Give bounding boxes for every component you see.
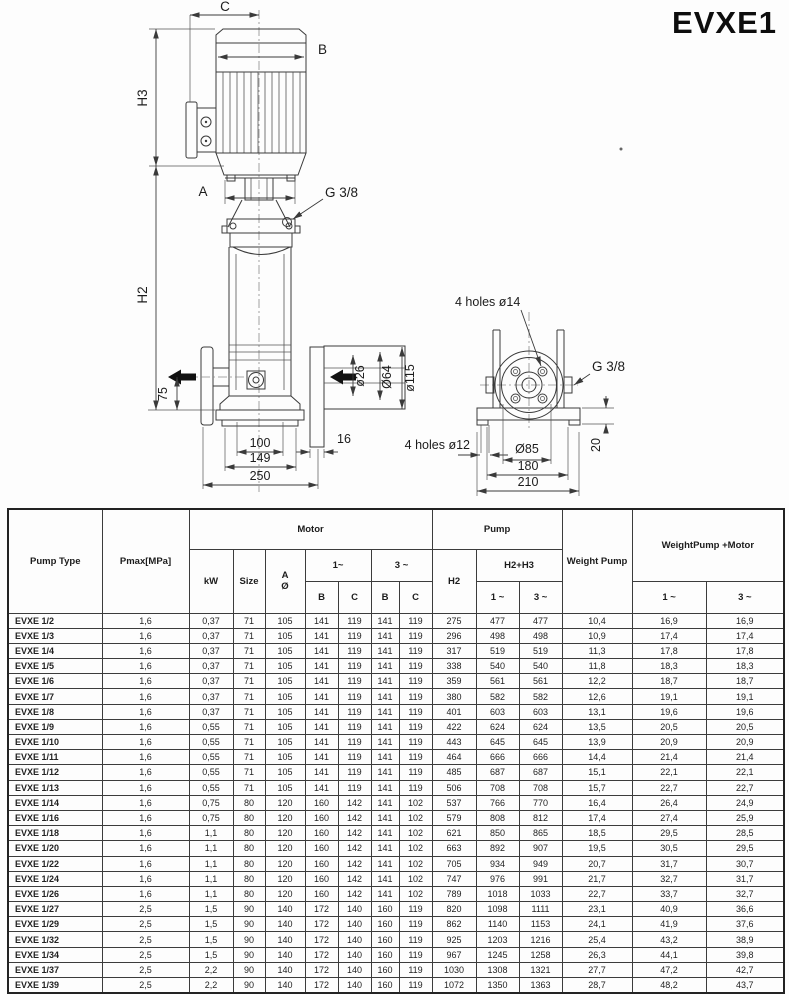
value-cell: 119 bbox=[338, 613, 371, 628]
value-cell: 1,6 bbox=[102, 659, 189, 674]
value-cell: 498 bbox=[519, 628, 562, 643]
value-cell: 102 bbox=[399, 826, 432, 841]
flow-arrow-icon bbox=[168, 370, 196, 385]
value-cell: 142 bbox=[338, 886, 371, 901]
value-cell: 105 bbox=[265, 643, 305, 658]
value-cell: 26,4 bbox=[632, 795, 706, 810]
pump-type-cell: EVXE 1/6 bbox=[8, 674, 102, 689]
value-cell: 105 bbox=[265, 750, 305, 765]
leader-g38-front bbox=[293, 199, 323, 219]
value-cell: 119 bbox=[399, 674, 432, 689]
value-cell: 1,6 bbox=[102, 674, 189, 689]
value-cell: 29,5 bbox=[632, 826, 706, 841]
value-cell: 71 bbox=[233, 659, 265, 674]
value-cell: 11,8 bbox=[562, 659, 632, 674]
table-row: EVXE 1/121,60,55711051411191411194856876… bbox=[8, 765, 784, 780]
value-cell: 687 bbox=[476, 765, 519, 780]
value-cell: 141 bbox=[371, 871, 399, 886]
value-cell: 119 bbox=[338, 735, 371, 750]
value-cell: 80 bbox=[233, 795, 265, 810]
group-weight-pump-motor: WeightPump +Motor bbox=[632, 509, 784, 581]
value-cell: 80 bbox=[233, 856, 265, 871]
col-h2: H2 bbox=[432, 549, 476, 613]
value-cell: 141 bbox=[305, 719, 338, 734]
base-foot bbox=[220, 396, 300, 410]
drain-boss bbox=[247, 371, 265, 389]
value-cell: 506 bbox=[432, 780, 476, 795]
value-cell: 582 bbox=[476, 689, 519, 704]
value-cell: 39,8 bbox=[706, 947, 784, 962]
pump-type-cell: EVXE 1/11 bbox=[8, 750, 102, 765]
value-cell: 160 bbox=[371, 978, 399, 993]
value-cell: 1030 bbox=[432, 962, 476, 977]
value-cell: 105 bbox=[265, 735, 305, 750]
value-cell: 537 bbox=[432, 795, 476, 810]
value-cell: 119 bbox=[338, 643, 371, 658]
value-cell: 19,6 bbox=[632, 704, 706, 719]
value-cell: 1203 bbox=[476, 932, 519, 947]
value-cell: 422 bbox=[432, 719, 476, 734]
value-cell: 789 bbox=[432, 886, 476, 901]
value-cell: 140 bbox=[338, 978, 371, 993]
value-cell: 1,6 bbox=[102, 826, 189, 841]
dim-label-100: 100 bbox=[250, 436, 271, 450]
pump-type-cell: EVXE 1/34 bbox=[8, 947, 102, 962]
value-cell: 80 bbox=[233, 871, 265, 886]
value-cell: 142 bbox=[338, 826, 371, 841]
value-cell: 141 bbox=[371, 735, 399, 750]
value-cell: 31,7 bbox=[632, 856, 706, 871]
value-cell: 1,5 bbox=[189, 932, 233, 947]
value-cell: 1,6 bbox=[102, 871, 189, 886]
value-cell: 141 bbox=[305, 735, 338, 750]
value-cell: 925 bbox=[432, 932, 476, 947]
value-cell: 1,6 bbox=[102, 886, 189, 901]
pump-type-cell: EVXE 1/4 bbox=[8, 643, 102, 658]
value-cell: 105 bbox=[265, 613, 305, 628]
side-base-foot bbox=[569, 420, 580, 425]
value-cell: 666 bbox=[519, 750, 562, 765]
value-cell: 1,6 bbox=[102, 795, 189, 810]
value-cell: 27,7 bbox=[562, 962, 632, 977]
value-cell: 33,7 bbox=[632, 886, 706, 901]
value-cell: 519 bbox=[519, 643, 562, 658]
col-h2h3-1ph: 1 ~ bbox=[476, 581, 519, 613]
col-weight-3ph: 3 ~ bbox=[706, 581, 784, 613]
value-cell: 142 bbox=[338, 795, 371, 810]
table-row: EVXE 1/91,60,557110514111914111942262462… bbox=[8, 719, 784, 734]
value-cell: 119 bbox=[338, 689, 371, 704]
value-cell: 141 bbox=[371, 886, 399, 901]
dim-label-h3: H3 bbox=[135, 89, 150, 106]
value-cell: 119 bbox=[399, 643, 432, 658]
pump-type-cell: EVXE 1/29 bbox=[8, 917, 102, 932]
value-cell: 141 bbox=[305, 780, 338, 795]
dimensions-table: Pump Type Pmax[MPa] Motor Pump Weight Pu… bbox=[7, 508, 785, 994]
value-cell: 43,7 bbox=[706, 978, 784, 993]
value-cell: 141 bbox=[371, 810, 399, 825]
value-cell: 23,1 bbox=[562, 902, 632, 917]
value-cell: 160 bbox=[305, 856, 338, 871]
value-cell: 1,6 bbox=[102, 719, 189, 734]
col-b-3ph: B bbox=[371, 581, 399, 613]
value-cell: 105 bbox=[265, 704, 305, 719]
value-cell: 624 bbox=[476, 719, 519, 734]
value-cell: 10,9 bbox=[562, 628, 632, 643]
value-cell: 140 bbox=[338, 917, 371, 932]
value-cell: 141 bbox=[371, 841, 399, 856]
value-cell: 28,7 bbox=[562, 978, 632, 993]
value-cell: 359 bbox=[432, 674, 476, 689]
value-cell: 141 bbox=[305, 750, 338, 765]
value-cell: 19,5 bbox=[562, 841, 632, 856]
value-cell: 0,55 bbox=[189, 765, 233, 780]
value-cell: 119 bbox=[399, 735, 432, 750]
col-a: A bbox=[282, 570, 289, 581]
dim-label-250: 250 bbox=[250, 469, 271, 483]
table-header: Pump Type Pmax[MPa] Motor Pump Weight Pu… bbox=[8, 509, 784, 613]
motor-fins bbox=[223, 72, 300, 153]
value-cell: 561 bbox=[476, 674, 519, 689]
motor-end-bell bbox=[216, 153, 306, 175]
value-cell: 71 bbox=[233, 765, 265, 780]
terminal-box bbox=[197, 108, 216, 152]
value-cell: 20,5 bbox=[632, 719, 706, 734]
terminal-bolt-dot bbox=[205, 121, 207, 123]
value-cell: 1258 bbox=[519, 947, 562, 962]
value-cell: 1245 bbox=[476, 947, 519, 962]
value-cell: 0,55 bbox=[189, 750, 233, 765]
value-cell: 119 bbox=[338, 704, 371, 719]
pump-type-cell: EVXE 1/12 bbox=[8, 765, 102, 780]
pump-type-cell: EVXE 1/13 bbox=[8, 780, 102, 795]
value-cell: 141 bbox=[305, 613, 338, 628]
table-row: EVXE 1/131,60,55711051411191411195067087… bbox=[8, 780, 784, 795]
value-cell: 172 bbox=[305, 947, 338, 962]
drain-plug-icon bbox=[249, 373, 264, 388]
value-cell: 105 bbox=[265, 659, 305, 674]
value-cell: 820 bbox=[432, 902, 476, 917]
chamber-curve bbox=[233, 247, 290, 255]
table-body: EVXE 1/21,60,377110514111914111927547747… bbox=[8, 613, 784, 993]
value-cell: 71 bbox=[233, 689, 265, 704]
value-cell: 17,4 bbox=[706, 628, 784, 643]
value-cell: 892 bbox=[476, 841, 519, 856]
group-motor-3ph: 3 ~ bbox=[371, 549, 432, 581]
value-cell: 172 bbox=[305, 932, 338, 947]
value-cell: 160 bbox=[371, 917, 399, 932]
value-cell: 71 bbox=[233, 719, 265, 734]
value-cell: 20,5 bbox=[706, 719, 784, 734]
value-cell: 140 bbox=[338, 902, 371, 917]
value-cell: 90 bbox=[233, 947, 265, 962]
value-cell: 31,7 bbox=[706, 871, 784, 886]
value-cell: 624 bbox=[519, 719, 562, 734]
value-cell: 26,3 bbox=[562, 947, 632, 962]
value-cell: 645 bbox=[476, 735, 519, 750]
value-cell: 119 bbox=[399, 947, 432, 962]
dim-label-h2: H2 bbox=[135, 286, 150, 303]
value-cell: 38,9 bbox=[706, 932, 784, 947]
pump-type-cell: EVXE 1/24 bbox=[8, 871, 102, 886]
value-cell: 141 bbox=[371, 719, 399, 734]
terminal-bolt-dot bbox=[205, 140, 207, 142]
value-cell: 1140 bbox=[476, 917, 519, 932]
value-cell: 119 bbox=[399, 704, 432, 719]
head-bolt-icon bbox=[230, 223, 236, 229]
value-cell: 1,1 bbox=[189, 826, 233, 841]
value-cell: 15,1 bbox=[562, 765, 632, 780]
value-cell: 13,1 bbox=[562, 704, 632, 719]
value-cell: 1350 bbox=[476, 978, 519, 993]
value-cell: 120 bbox=[265, 795, 305, 810]
value-cell: 967 bbox=[432, 947, 476, 962]
value-cell: 621 bbox=[432, 826, 476, 841]
value-cell: 119 bbox=[338, 628, 371, 643]
value-cell: 15,7 bbox=[562, 780, 632, 795]
terminal-box-plate bbox=[186, 102, 197, 158]
value-cell: 17,8 bbox=[706, 643, 784, 658]
pump-type-cell: EVXE 1/5 bbox=[8, 659, 102, 674]
value-cell: 1111 bbox=[519, 902, 562, 917]
value-cell: 17,4 bbox=[632, 628, 706, 643]
value-cell: 119 bbox=[338, 765, 371, 780]
value-cell: 2,5 bbox=[102, 902, 189, 917]
value-cell: 10,4 bbox=[562, 613, 632, 628]
value-cell: 71 bbox=[233, 750, 265, 765]
value-cell: 140 bbox=[338, 932, 371, 947]
value-cell: 120 bbox=[265, 871, 305, 886]
value-cell: 120 bbox=[265, 810, 305, 825]
value-cell: 24,1 bbox=[562, 917, 632, 932]
value-cell: 770 bbox=[519, 795, 562, 810]
value-cell: 25,9 bbox=[706, 810, 784, 825]
pump-type-cell: EVXE 1/22 bbox=[8, 856, 102, 871]
value-cell: 102 bbox=[399, 871, 432, 886]
value-cell: 603 bbox=[519, 704, 562, 719]
pump-side-view: 4 holes ø14 G 3/8 4 holes ø12 Ø85 180 21… bbox=[405, 295, 625, 496]
value-cell: 41,9 bbox=[632, 917, 706, 932]
col-pump-type: Pump Type bbox=[8, 509, 102, 613]
value-cell: 119 bbox=[399, 719, 432, 734]
value-cell: 1,1 bbox=[189, 886, 233, 901]
value-cell: 160 bbox=[371, 932, 399, 947]
pump-type-cell: EVXE 1/27 bbox=[8, 902, 102, 917]
value-cell: 19,1 bbox=[706, 689, 784, 704]
value-cell: 666 bbox=[476, 750, 519, 765]
value-cell: 22,1 bbox=[706, 765, 784, 780]
value-cell: 30,5 bbox=[632, 841, 706, 856]
value-cell: 140 bbox=[265, 902, 305, 917]
port-label-g38-side: G 3/8 bbox=[592, 359, 625, 374]
value-cell: 808 bbox=[476, 810, 519, 825]
dim-label-16: 16 bbox=[337, 432, 351, 446]
motor-upper-band bbox=[216, 43, 306, 72]
dim-label-180: 180 bbox=[518, 459, 539, 473]
value-cell: 317 bbox=[432, 643, 476, 658]
dim-label-d26: ø26 bbox=[353, 365, 367, 387]
value-cell: 1,6 bbox=[102, 628, 189, 643]
value-cell: 90 bbox=[233, 917, 265, 932]
dim-label-d64: Ø64 bbox=[380, 365, 394, 389]
table-row: EVXE 1/342,51,59014017214016011996712451… bbox=[8, 947, 784, 962]
value-cell: 275 bbox=[432, 613, 476, 628]
value-cell: 141 bbox=[305, 765, 338, 780]
dim-label-b: B bbox=[318, 42, 327, 57]
pump-type-cell: EVXE 1/2 bbox=[8, 613, 102, 628]
value-cell: 141 bbox=[371, 704, 399, 719]
technical-drawing: C B H3 A G 3/8 H2 75 ø26 Ø64 ø115 bbox=[0, 0, 789, 505]
value-cell: 141 bbox=[371, 659, 399, 674]
value-cell: 1018 bbox=[476, 886, 519, 901]
table-row: EVXE 1/372,52,29014017214016011910301308… bbox=[8, 962, 784, 977]
dim-label-c: C bbox=[220, 0, 230, 14]
pump-type-cell: EVXE 1/26 bbox=[8, 886, 102, 901]
value-cell: 105 bbox=[265, 628, 305, 643]
value-cell: 119 bbox=[399, 613, 432, 628]
value-cell: 140 bbox=[265, 917, 305, 932]
value-cell: 907 bbox=[519, 841, 562, 856]
motor-fan-cover bbox=[216, 29, 306, 43]
value-cell: 80 bbox=[233, 810, 265, 825]
value-cell: 13,5 bbox=[562, 719, 632, 734]
value-cell: 12,2 bbox=[562, 674, 632, 689]
value-cell: 142 bbox=[338, 871, 371, 886]
col-weight-pump: Weight Pump bbox=[562, 509, 632, 613]
value-cell: 90 bbox=[233, 932, 265, 947]
value-cell: 172 bbox=[305, 917, 338, 932]
table-row: EVXE 1/31,60,377110514111914111929649849… bbox=[8, 628, 784, 643]
value-cell: 976 bbox=[476, 871, 519, 886]
dim-label-75: 75 bbox=[156, 387, 170, 401]
value-cell: 1,6 bbox=[102, 856, 189, 871]
value-cell: 119 bbox=[399, 659, 432, 674]
value-cell: 141 bbox=[371, 613, 399, 628]
base-plate bbox=[216, 410, 304, 420]
value-cell: 949 bbox=[519, 856, 562, 871]
value-cell: 1,1 bbox=[189, 841, 233, 856]
value-cell: 19,6 bbox=[706, 704, 784, 719]
value-cell: 16,9 bbox=[706, 613, 784, 628]
suction-flange bbox=[201, 347, 213, 425]
value-cell: 1,6 bbox=[102, 750, 189, 765]
pump-type-cell: EVXE 1/14 bbox=[8, 795, 102, 810]
table-row: EVXE 1/322,51,59014017214016011992512031… bbox=[8, 932, 784, 947]
value-cell: 32,7 bbox=[632, 871, 706, 886]
pump-type-cell: EVXE 1/16 bbox=[8, 810, 102, 825]
col-kw: kW bbox=[189, 549, 233, 613]
value-cell: 120 bbox=[265, 886, 305, 901]
dim-label-20: 20 bbox=[589, 438, 603, 452]
value-cell: 0,37 bbox=[189, 643, 233, 658]
value-cell: 18,7 bbox=[632, 674, 706, 689]
discharge-flange bbox=[310, 347, 324, 447]
value-cell: 380 bbox=[432, 689, 476, 704]
leader-g38-side bbox=[574, 374, 590, 385]
dim-label-d85: Ø85 bbox=[515, 442, 539, 456]
value-cell: 862 bbox=[432, 917, 476, 932]
value-cell: 1098 bbox=[476, 902, 519, 917]
value-cell: 160 bbox=[371, 902, 399, 917]
table-row: EVXE 1/71,60,377110514111914111938058258… bbox=[8, 689, 784, 704]
value-cell: 1,6 bbox=[102, 735, 189, 750]
value-cell: 71 bbox=[233, 613, 265, 628]
col-weight-1ph: 1 ~ bbox=[632, 581, 706, 613]
table-row: EVXE 1/111,60,55711051411191411194646666… bbox=[8, 750, 784, 765]
pump-type-cell: EVXE 1/20 bbox=[8, 841, 102, 856]
value-cell: 0,37 bbox=[189, 628, 233, 643]
value-cell: 21,4 bbox=[632, 750, 706, 765]
value-cell: 43,2 bbox=[632, 932, 706, 947]
group-pump: Pump bbox=[432, 509, 562, 549]
value-cell: 71 bbox=[233, 735, 265, 750]
value-cell: 90 bbox=[233, 978, 265, 993]
value-cell: 0,37 bbox=[189, 613, 233, 628]
value-cell: 812 bbox=[519, 810, 562, 825]
motor-fin-body bbox=[216, 72, 306, 153]
value-cell: 687 bbox=[519, 765, 562, 780]
group-h2h3: H2+H3 bbox=[476, 549, 562, 581]
value-cell: 119 bbox=[399, 917, 432, 932]
value-cell: 28,5 bbox=[706, 826, 784, 841]
col-b-1ph: B bbox=[305, 581, 338, 613]
dim-label-a: A bbox=[198, 184, 207, 199]
value-cell: 20,7 bbox=[562, 856, 632, 871]
value-cell: 0,37 bbox=[189, 659, 233, 674]
value-cell: 160 bbox=[371, 962, 399, 977]
value-cell: 40,9 bbox=[632, 902, 706, 917]
value-cell: 160 bbox=[305, 810, 338, 825]
value-cell: 47,2 bbox=[632, 962, 706, 977]
value-cell: 119 bbox=[338, 719, 371, 734]
value-cell: 141 bbox=[371, 643, 399, 658]
value-cell: 102 bbox=[399, 856, 432, 871]
value-cell: 991 bbox=[519, 871, 562, 886]
dim-label-210: 210 bbox=[518, 475, 539, 489]
table-row: EVXE 1/241,61,18012016014214110274797699… bbox=[8, 871, 784, 886]
value-cell: 1,6 bbox=[102, 704, 189, 719]
value-cell: 11,3 bbox=[562, 643, 632, 658]
value-cell: 105 bbox=[265, 689, 305, 704]
head-ear bbox=[222, 226, 227, 233]
value-cell: 705 bbox=[432, 856, 476, 871]
value-cell: 160 bbox=[305, 871, 338, 886]
col-c-3ph: C bbox=[399, 581, 432, 613]
pump-type-cell: EVXE 1/32 bbox=[8, 932, 102, 947]
col-c-1ph: C bbox=[338, 581, 371, 613]
value-cell: 29,5 bbox=[706, 841, 784, 856]
value-cell: 1,5 bbox=[189, 902, 233, 917]
value-cell: 140 bbox=[338, 947, 371, 962]
value-cell: 17,4 bbox=[562, 810, 632, 825]
value-cell: 44,1 bbox=[632, 947, 706, 962]
value-cell: 0,75 bbox=[189, 810, 233, 825]
value-cell: 141 bbox=[371, 826, 399, 841]
value-cell: 464 bbox=[432, 750, 476, 765]
value-cell: 32,7 bbox=[706, 886, 784, 901]
value-cell: 160 bbox=[305, 826, 338, 841]
value-cell: 71 bbox=[233, 643, 265, 658]
value-cell: 2,5 bbox=[102, 962, 189, 977]
value-cell: 119 bbox=[399, 780, 432, 795]
value-cell: 747 bbox=[432, 871, 476, 886]
value-cell: 2,5 bbox=[102, 932, 189, 947]
col-pmax: Pmax[MPa] bbox=[102, 509, 189, 613]
value-cell: 708 bbox=[519, 780, 562, 795]
value-cell: 142 bbox=[338, 856, 371, 871]
value-cell: 1,6 bbox=[102, 643, 189, 658]
value-cell: 172 bbox=[305, 902, 338, 917]
